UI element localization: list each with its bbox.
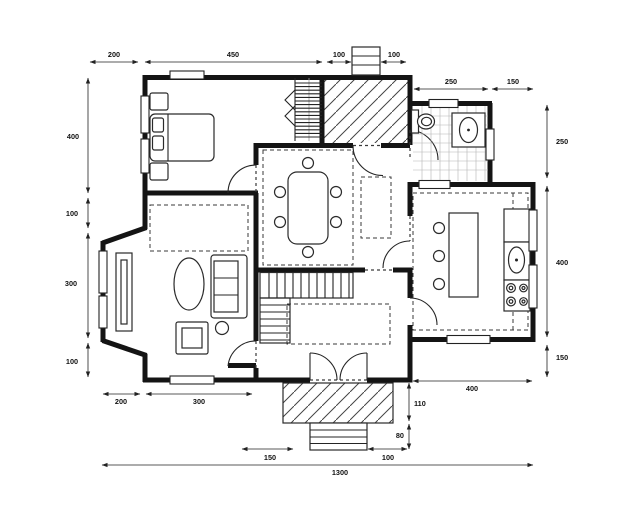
kitchen bbox=[413, 193, 530, 330]
dim-left-4: 100 bbox=[66, 357, 78, 366]
window bbox=[529, 265, 537, 308]
living-room bbox=[116, 205, 248, 354]
living-rug bbox=[150, 205, 248, 251]
nightstand bbox=[150, 163, 168, 180]
dim-kitchen-bottom: 400 bbox=[466, 384, 478, 393]
window bbox=[170, 376, 214, 384]
coffee-table bbox=[174, 258, 204, 310]
dim-right-3: 150 bbox=[556, 353, 568, 362]
window bbox=[141, 96, 149, 133]
radiator bbox=[116, 253, 132, 331]
entry-door-arc-left bbox=[310, 353, 337, 380]
kitchen-cabinet bbox=[504, 209, 530, 242]
window bbox=[419, 181, 450, 189]
dining-chair bbox=[303, 247, 314, 258]
dim-top-4: 100 bbox=[388, 50, 400, 59]
window bbox=[429, 100, 458, 108]
upper-stairs-treads bbox=[295, 83, 322, 137]
window bbox=[141, 139, 149, 173]
window bbox=[529, 210, 537, 251]
hall-stairs bbox=[260, 273, 353, 344]
dim-bath-1: 250 bbox=[445, 77, 457, 86]
dim-left-1: 400 bbox=[67, 132, 79, 141]
floor-plan-page: 200 450 100 100 250 150 400 100 300 100 … bbox=[0, 0, 630, 520]
stool bbox=[434, 251, 445, 262]
dining-door-arc bbox=[353, 146, 383, 176]
dining-chair bbox=[331, 217, 342, 228]
bathroom-door-arc bbox=[410, 130, 438, 160]
dining-room bbox=[263, 150, 391, 265]
window bbox=[447, 336, 490, 344]
dining-chair bbox=[303, 158, 314, 169]
dim-bottom-2: 300 bbox=[193, 397, 205, 406]
chimney bbox=[352, 47, 380, 75]
side-table bbox=[216, 322, 229, 335]
entry-door-arc-right bbox=[340, 353, 367, 380]
dim-porch-depth: 110 bbox=[414, 399, 426, 408]
bedroom-door-arc bbox=[228, 165, 256, 193]
window bbox=[99, 296, 107, 328]
stool bbox=[434, 279, 445, 290]
upper-stairs bbox=[285, 78, 322, 141]
window bbox=[99, 251, 107, 293]
kitchen-lower-door-arc bbox=[410, 298, 437, 325]
bathroom bbox=[412, 106, 489, 181]
sideboard-outline bbox=[361, 177, 391, 238]
dim-steps-depth: 80 bbox=[396, 431, 404, 440]
window bbox=[486, 129, 494, 160]
dining-table bbox=[288, 172, 328, 244]
bedroom bbox=[150, 93, 214, 180]
floor-plan-canvas: 200 450 100 100 250 150 400 100 300 100 … bbox=[0, 0, 630, 520]
sofa bbox=[211, 255, 247, 318]
kitchen-upper-door-arc bbox=[383, 241, 410, 268]
dim-step-1: 150 bbox=[264, 453, 276, 462]
dim-total: 1300 bbox=[332, 468, 348, 477]
hall-rug bbox=[287, 304, 390, 344]
nightstand bbox=[150, 93, 168, 110]
dim-right-1: 250 bbox=[556, 137, 568, 146]
dining-chair bbox=[275, 217, 286, 228]
dim-left-2: 100 bbox=[66, 209, 78, 218]
bathroom-sink bbox=[452, 113, 485, 147]
dim-step-2: 100 bbox=[382, 453, 394, 462]
kitchen-island bbox=[449, 213, 478, 297]
dim-right-2: 400 bbox=[556, 258, 568, 267]
dining-chair bbox=[331, 187, 342, 198]
dim-bath-2: 150 bbox=[507, 77, 519, 86]
window bbox=[170, 71, 204, 79]
dining-chair bbox=[275, 187, 286, 198]
living-room-door-arc bbox=[228, 341, 256, 366]
dim-top-3: 100 bbox=[333, 50, 345, 59]
dim-bottom-1: 200 bbox=[115, 397, 127, 406]
stool bbox=[434, 223, 445, 234]
dim-left-3: 300 bbox=[65, 279, 77, 288]
dim-top-2: 450 bbox=[227, 50, 239, 59]
entry-porch bbox=[283, 383, 393, 450]
bed bbox=[150, 114, 214, 161]
dim-top-1: 200 bbox=[108, 50, 120, 59]
armchair bbox=[176, 322, 208, 354]
